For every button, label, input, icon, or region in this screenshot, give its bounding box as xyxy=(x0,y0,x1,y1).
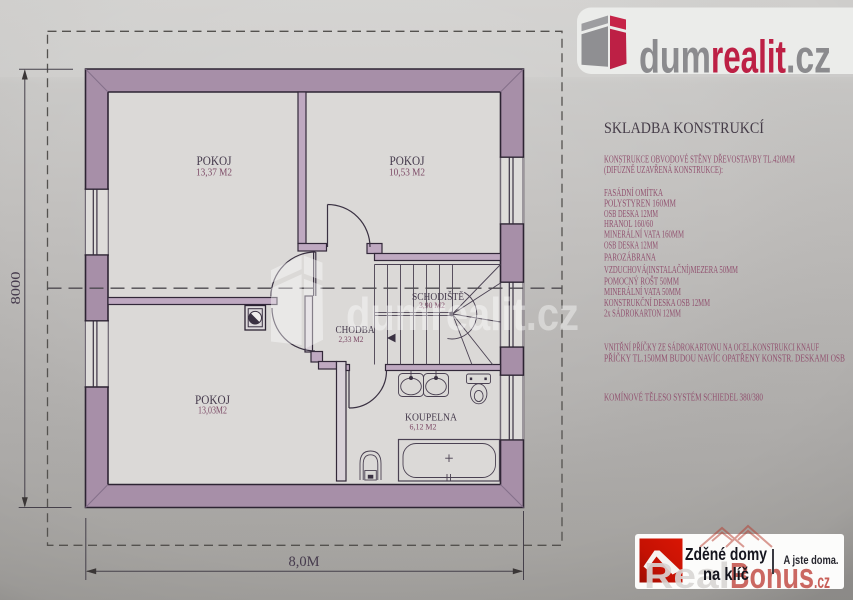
svg-text:PŘÍČKY TL.150MM BUDOU NAVÍC OP: PŘÍČKY TL.150MM BUDOU NAVÍC OPATŘENY KON… xyxy=(604,352,845,364)
svg-text:dum: dum xyxy=(639,31,711,83)
svg-text:POKOJ: POKOJ xyxy=(197,153,232,168)
svg-text:VZDUCHOVÁ(INSTALAČNÍ)MEZERA 50: VZDUCHOVÁ(INSTALAČNÍ)MEZERA 50MM xyxy=(604,264,738,276)
svg-text:OSB DESKA 12MM: OSB DESKA 12MM xyxy=(604,240,658,251)
svg-text:(DIFÚZNĚ UZAVŘENÁ KONSTRUKCE):: (DIFÚZNĚ UZAVŘENÁ KONSTRUKCE): xyxy=(604,164,723,176)
svg-text:.cz: .cz xyxy=(814,572,830,593)
svg-text:POMOCNÝ ROŠT 50MM: POMOCNÝ ROŠT 50MM xyxy=(604,276,679,288)
svg-text:.cz: .cz xyxy=(786,31,831,83)
svg-text:VNITŘNÍ PŘÍČKY ZE SÁDROKARTONU: VNITŘNÍ PŘÍČKY ZE SÁDROKARTONU NA OCEL.K… xyxy=(604,342,819,354)
svg-text:Zděné domy: Zděné domy xyxy=(685,544,767,564)
svg-text:SKLADBA KONSTRUKCÍ: SKLADBA KONSTRUKCÍ xyxy=(604,120,764,137)
svg-text:KONSTRUKCE OBVODOVÉ STĚNY DŘEV: KONSTRUKCE OBVODOVÉ STĚNY DŘEVOSTAVBY TL… xyxy=(604,154,795,166)
svg-text:FASÁDNÍ OMÍTKA: FASÁDNÍ OMÍTKA xyxy=(604,187,663,199)
svg-text:na klíč: na klíč xyxy=(703,564,749,584)
svg-text:8000: 8000 xyxy=(8,271,23,304)
svg-text:KOMÍNOVÉ TĚLESO SYSTÉM SCHIEDE: KOMÍNOVÉ TĚLESO SYSTÉM SCHIEDEL 380/380 xyxy=(604,392,763,404)
svg-text:10,53 M2: 10,53 M2 xyxy=(389,168,425,179)
svg-text:KONSTRUKČNÍ DESKA OSB 12MM: KONSTRUKČNÍ DESKA OSB 12MM xyxy=(604,297,710,309)
svg-text:8,0M: 8,0M xyxy=(288,554,319,570)
svg-text:13,37 M2: 13,37 M2 xyxy=(196,168,232,179)
svg-text:13,03M2: 13,03M2 xyxy=(198,406,227,417)
svg-text:2x SÁDROKARTON 12MM: 2x SÁDROKARTON 12MM xyxy=(604,308,681,320)
svg-text:MINERÁLNÍ VATA 160MM: MINERÁLNÍ VATA 160MM xyxy=(604,228,684,240)
svg-text:MINERÁLNÍ VATA 50MM: MINERÁLNÍ VATA 50MM xyxy=(604,286,681,298)
svg-text:PAROZÁBRANA: PAROZÁBRANA xyxy=(604,251,656,263)
svg-text:6,12 M2: 6,12 M2 xyxy=(410,422,437,432)
svg-text:realit: realit xyxy=(711,31,786,83)
svg-text:dumrealit.cz: dumrealit.cz xyxy=(346,288,579,340)
svg-text:POKOJ: POKOJ xyxy=(390,153,425,168)
svg-text:A jste doma.: A jste doma. xyxy=(784,553,839,567)
